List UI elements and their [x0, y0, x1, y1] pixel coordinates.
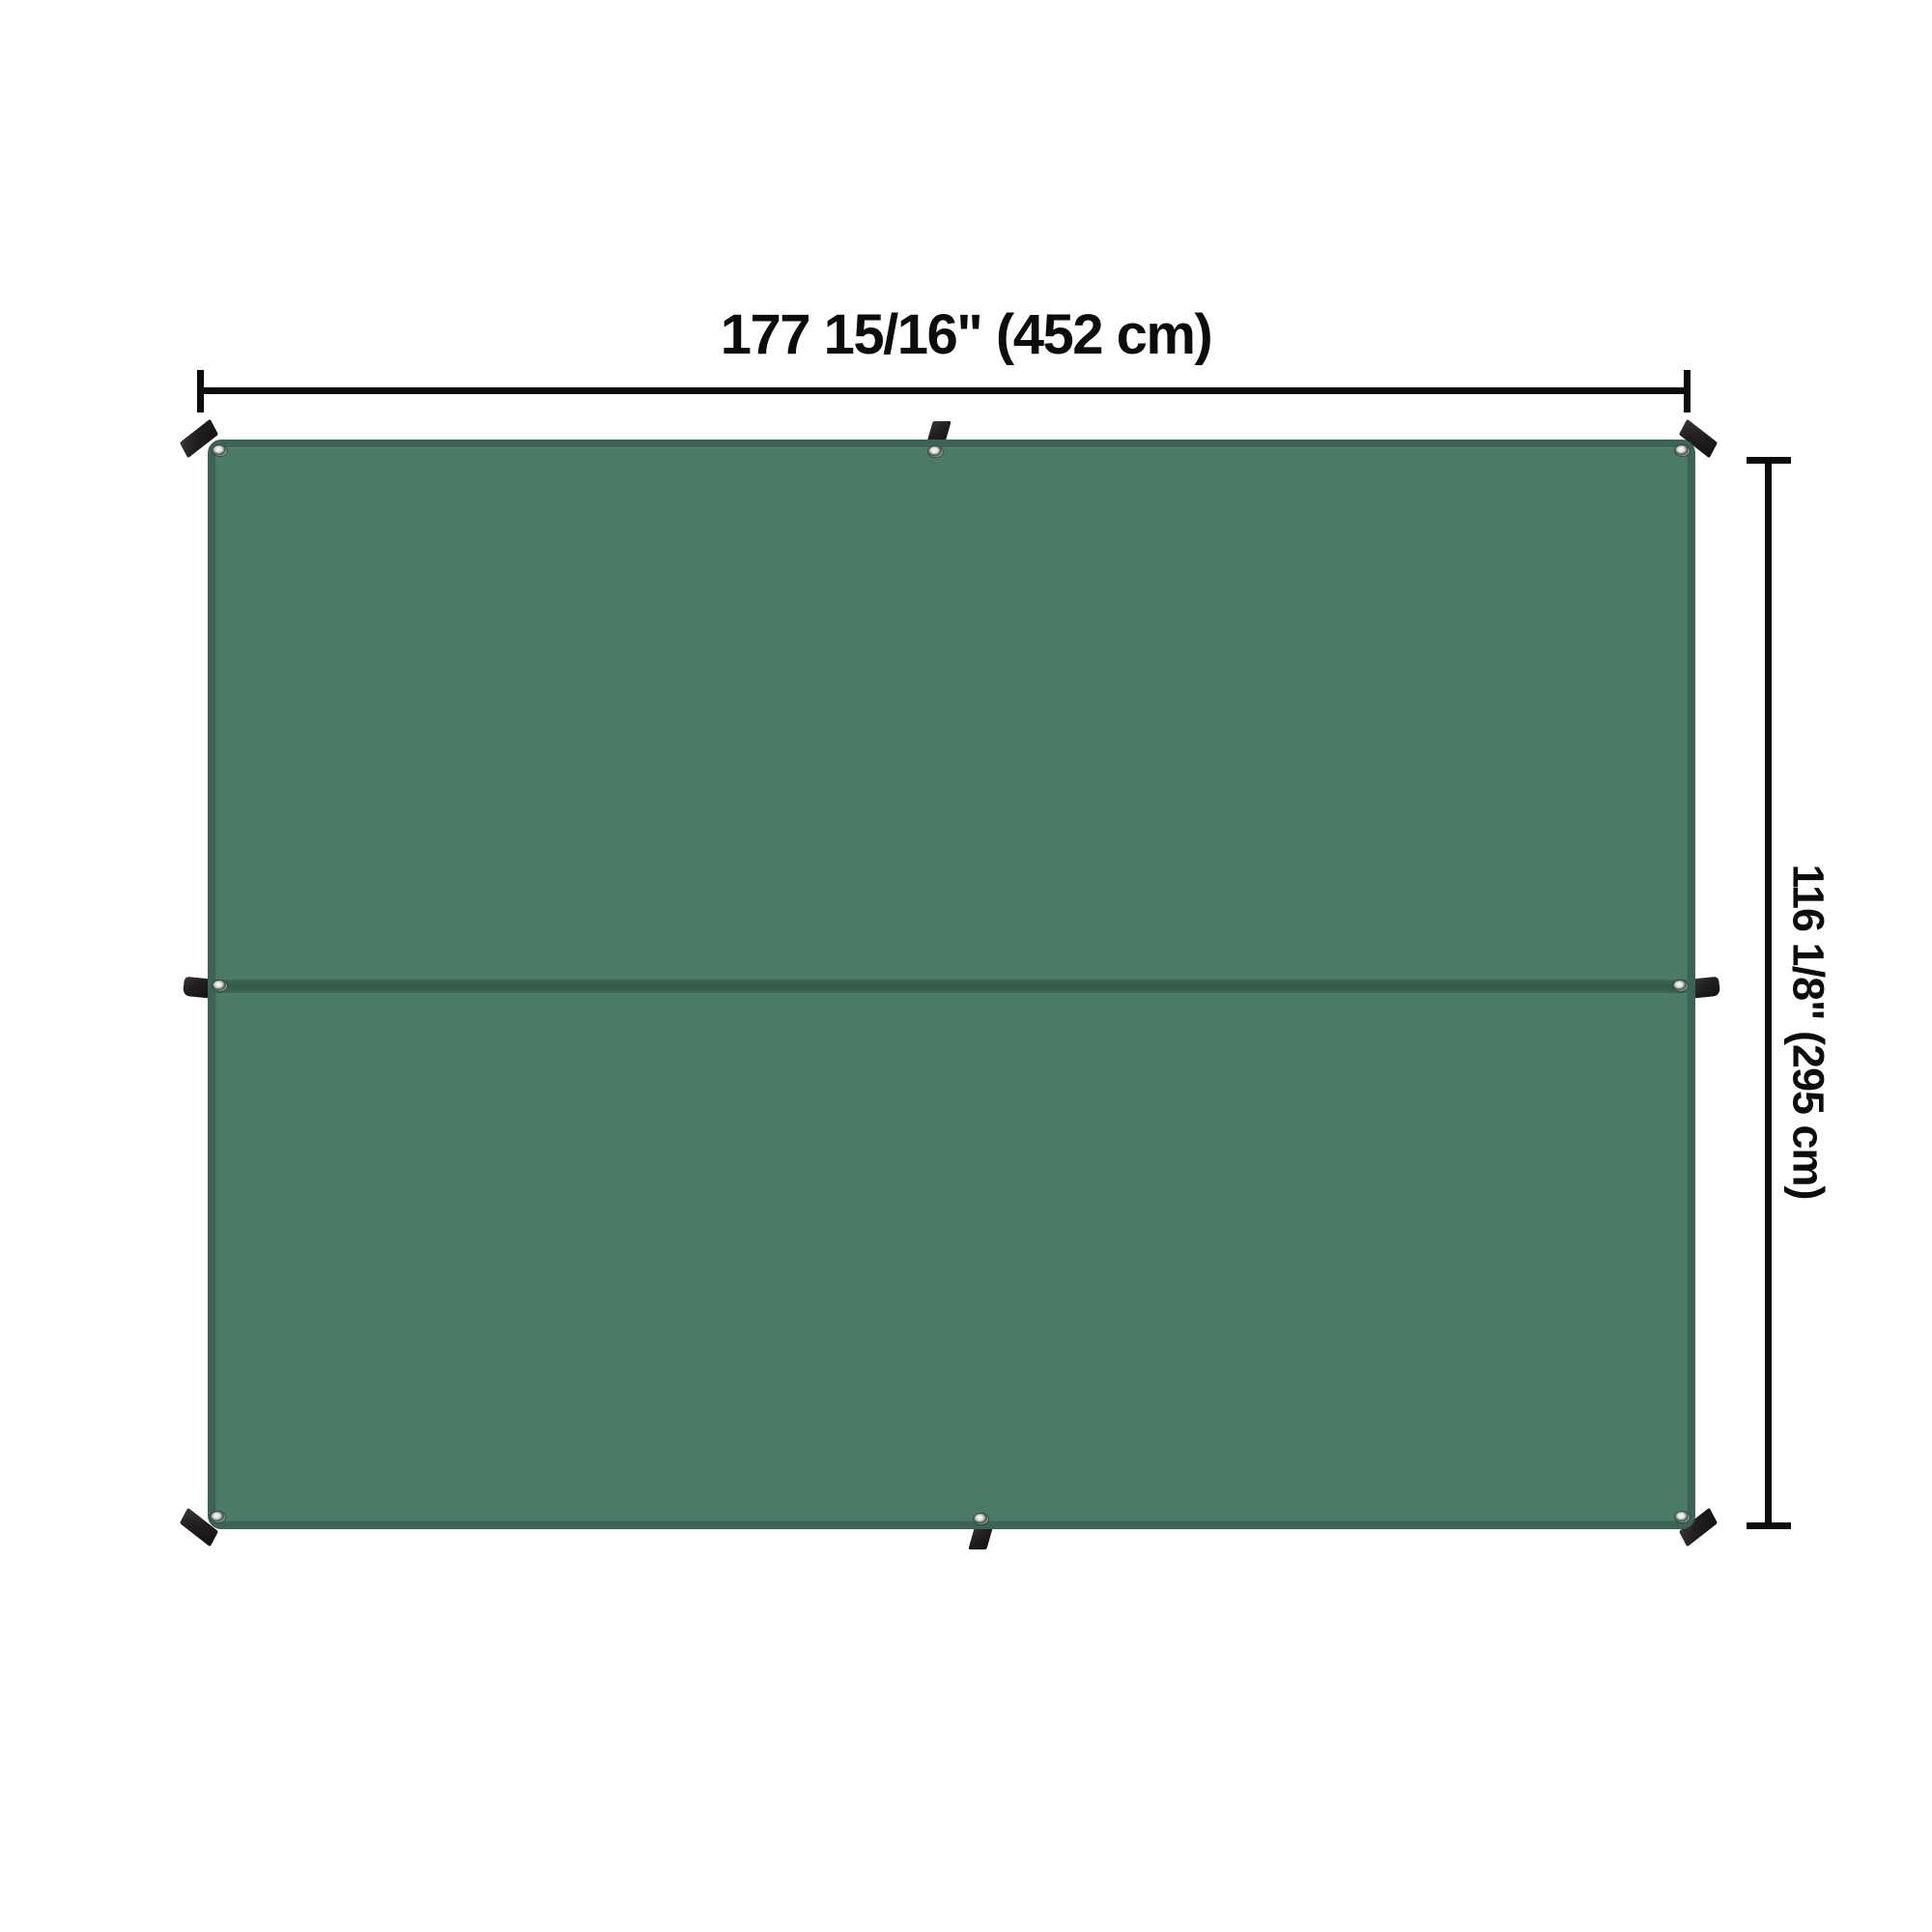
grommet-bottom-center [974, 1514, 988, 1524]
height-dimension-line [1765, 457, 1772, 1529]
width-dimension-label: 177 15/16" (452 cm) [721, 307, 1211, 363]
tie-loop-middle-right [1693, 977, 1720, 999]
tie-loop-middle-left [183, 977, 210, 999]
grommet-middle-right [1673, 980, 1688, 991]
grommet-bottom-left [211, 1512, 225, 1522]
grommet-top-right [1675, 445, 1690, 456]
width-dimension-cap-right [1684, 370, 1690, 412]
height-dimension-label: 116 1/8" (295 cm) [1787, 864, 1831, 1199]
height-dimension-cap-bottom [1747, 1522, 1791, 1529]
product-dimension-diagram: 177 15/16" (452 cm) 116 1/8" (295 cm) [0, 0, 1932, 1932]
grommet-middle-left [213, 980, 227, 991]
tarp-center-seam [216, 980, 1687, 993]
grommet-top-center [928, 446, 943, 457]
height-dimension-cap-top [1747, 457, 1791, 464]
width-dimension-cap-left [197, 370, 204, 412]
width-dimension-line [197, 387, 1690, 394]
grommet-top-left [213, 445, 227, 456]
grommet-bottom-right [1675, 1512, 1690, 1522]
